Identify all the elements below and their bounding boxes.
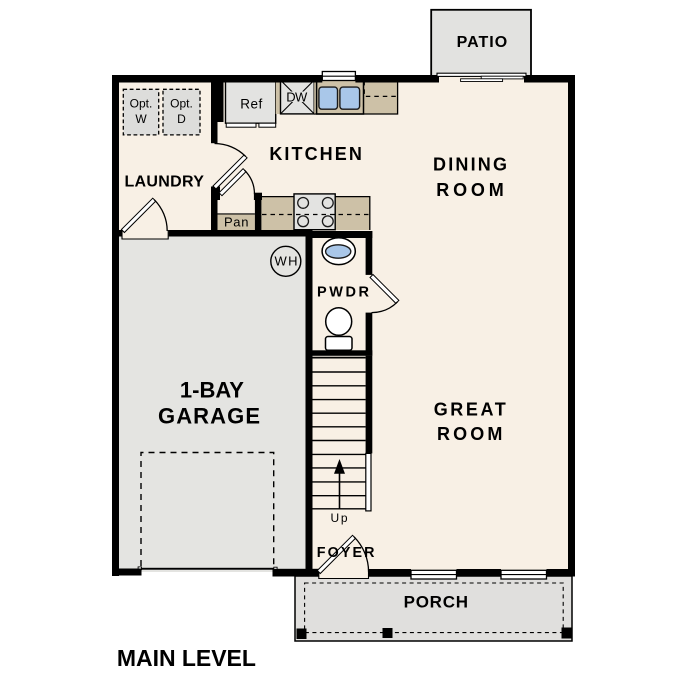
svg-text:Pan: Pan <box>224 215 249 230</box>
svg-text:Ref: Ref <box>240 96 262 111</box>
svg-text:LAUNDRY: LAUNDRY <box>124 173 204 190</box>
svg-text:Opt.: Opt. <box>130 96 153 110</box>
svg-text:PORCH: PORCH <box>404 592 468 611</box>
svg-text:D: D <box>177 112 186 126</box>
svg-text:DINING: DINING <box>433 155 507 175</box>
svg-text:Opt.: Opt. <box>170 96 193 110</box>
svg-text:W: W <box>135 112 147 126</box>
svg-text:ROOM: ROOM <box>437 424 502 444</box>
svg-text:Up: Up <box>331 511 348 525</box>
svg-text:1-BAY: 1-BAY <box>180 377 244 402</box>
svg-text:ROOM: ROOM <box>436 180 504 200</box>
svg-text:DW: DW <box>286 90 308 105</box>
svg-text:GREAT: GREAT <box>434 399 506 419</box>
svg-text:PATIO: PATIO <box>457 34 508 51</box>
svg-text:GARAGE: GARAGE <box>158 403 260 428</box>
svg-text:WH: WH <box>275 254 298 269</box>
svg-text:MAIN LEVEL: MAIN LEVEL <box>117 645 256 671</box>
